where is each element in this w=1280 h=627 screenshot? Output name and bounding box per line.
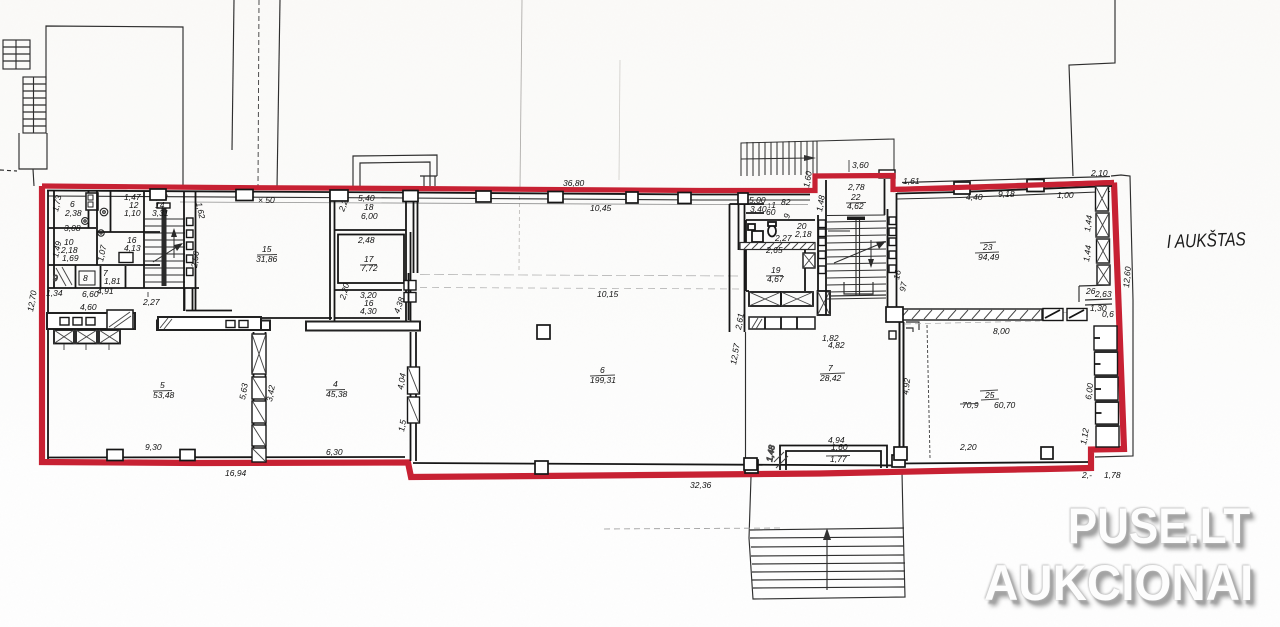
svg-text:4,91: 4,91 [97,286,114,296]
svg-text:9,30: 9,30 [145,442,162,452]
svg-text:2,27: 2,27 [142,297,160,307]
svg-text:2,20: 2,20 [959,442,977,452]
svg-text:10,15: 10,15 [597,289,619,299]
svg-text:25: 25 [984,390,995,400]
svg-text:1,78: 1,78 [1104,470,1121,480]
svg-text:10,45: 10,45 [590,203,612,213]
svg-text:16,94: 16,94 [225,468,247,478]
svg-text:8: 8 [83,273,88,283]
svg-text:4,82: 4,82 [828,340,845,350]
svg-text:4,60: 4,60 [80,302,97,312]
svg-text:4,13: 4,13 [124,243,141,253]
svg-text:2,18: 2,18 [794,229,812,239]
svg-text:32,36: 32,36 [690,480,712,490]
svg-text:1,10: 1,10 [124,208,141,218]
svg-text:6,30: 6,30 [326,447,343,457]
svg-text:3,08: 3,08 [64,223,81,233]
svg-text:7: 7 [828,363,833,373]
svg-text:45,38: 45,38 [326,389,348,399]
svg-text:2,-: 2,- [1081,470,1092,480]
svg-text:I AUKŠTAS: I AUKŠTAS [1166,228,1246,253]
svg-text:1,61: 1,61 [903,176,920,186]
svg-text:60: 60 [766,207,776,217]
svg-text:199,31: 199,31 [590,375,616,385]
svg-text:15: 15 [262,244,272,254]
svg-text:9,18: 9,18 [998,189,1015,199]
svg-text:2,10: 2,10 [1090,168,1108,178]
svg-text:2,38: 2,38 [64,208,82,218]
svg-text:3,31: 3,31 [152,208,169,218]
svg-text:70,9: 70,9 [962,400,979,410]
svg-text:28,42: 28,42 [819,373,842,383]
svg-text:2,48: 2,48 [357,235,375,245]
svg-text:4: 4 [333,379,338,389]
svg-text:8,00: 8,00 [993,326,1010,336]
svg-text:0,6: 0,6 [1102,309,1114,319]
svg-text:6: 6 [600,365,605,375]
svg-text:82: 82 [781,197,791,207]
svg-text:1,69: 1,69 [62,253,79,263]
svg-text:2,65: 2,65 [765,245,783,255]
svg-text:9: 9 [53,273,58,283]
svg-text:60,70: 60,70 [994,400,1016,410]
svg-text:36,80: 36,80 [563,178,585,188]
svg-text:× 50: × 50 [258,195,275,205]
svg-text:12,60: 12,60 [1121,266,1133,288]
svg-text:4,30: 4,30 [360,306,377,316]
svg-text:1,81: 1,81 [104,276,121,286]
svg-text:3,60: 3,60 [852,160,869,170]
svg-text:5: 5 [160,380,165,390]
svg-text:53,48: 53,48 [153,390,175,400]
svg-text:2,27: 2,27 [774,233,792,243]
svg-text:31,86: 31,86 [256,254,278,264]
svg-text:1,60: 1,60 [831,442,848,452]
svg-text:6,00: 6,00 [361,211,378,221]
svg-text:1,00: 1,00 [1057,190,1074,200]
svg-text:1,5: 1,5 [396,419,408,433]
svg-text:94,49: 94,49 [978,252,1000,262]
svg-text:2,63: 2,63 [1094,289,1112,299]
svg-text:23: 23 [982,242,993,252]
svg-text:3,40: 3,40 [750,204,767,214]
svg-text:2,78: 2,78 [847,182,865,192]
svg-text:1,34: 1,34 [46,288,63,298]
